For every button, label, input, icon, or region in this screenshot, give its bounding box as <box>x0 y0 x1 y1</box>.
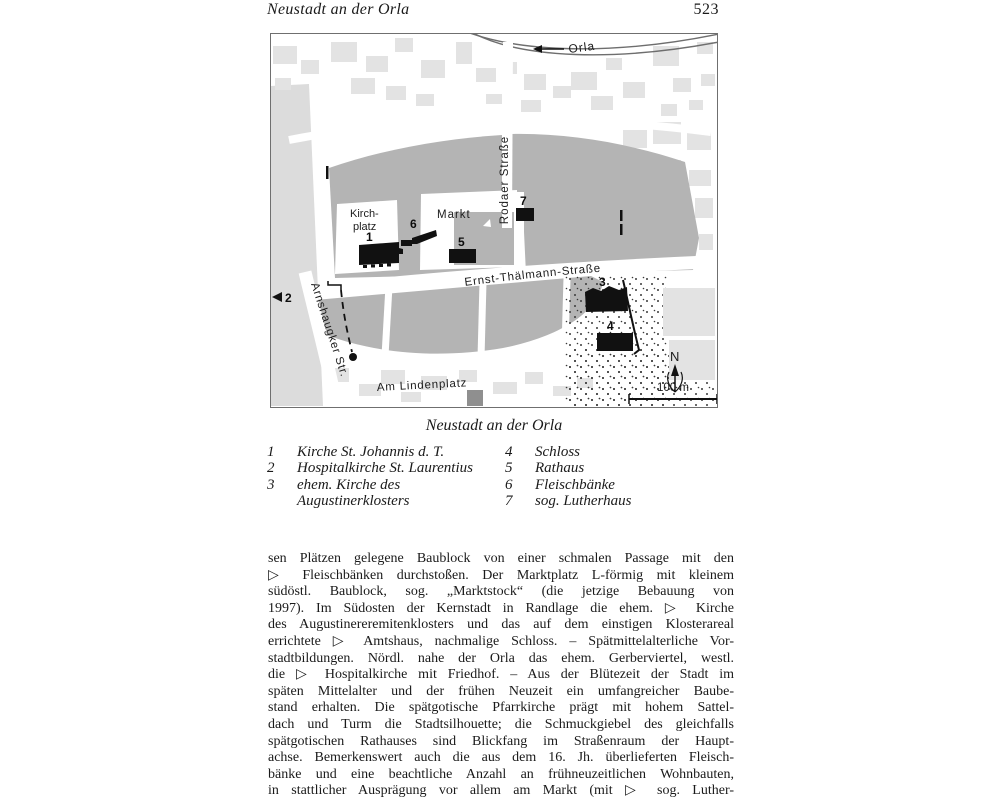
town-plan-map: 1 2 3 4 5 6 7 Orla Rodaer Straße Markt K… <box>270 33 718 408</box>
legend-item: 6 Fleischbänke <box>505 477 725 493</box>
legend-column-left: 1 Kirche St. Johannis d. T. 2 Hospitalki… <box>267 444 502 510</box>
legend-label: Augustinerklosters <box>297 493 502 509</box>
legend-number <box>267 493 297 509</box>
text-line: errichtete ▷ Amtshaus, nachmalige Schlos… <box>268 634 734 651</box>
map-label-rodaer-strasse: Rodaer Straße <box>499 136 511 224</box>
marker-2: 2 <box>285 291 292 305</box>
text-line: bänke und eine beachtliche Anzahl an frü… <box>268 767 734 784</box>
text-line: spätgotischen Rathauses sind Blickfang i… <box>268 734 734 751</box>
legend-number: 2 <box>267 460 297 476</box>
map-outer-buildings-top <box>273 38 715 116</box>
map-dark-building <box>467 390 483 406</box>
legend-number: 7 <box>505 493 535 509</box>
map-outer-buildings-southeast <box>663 288 715 380</box>
map-label-markt: Markt <box>437 209 471 221</box>
building-4-schloss <box>597 333 633 351</box>
marker-7: 7 <box>520 194 527 208</box>
map-label-kirchplatz-1: Kirch- <box>350 208 379 220</box>
marker-6: 6 <box>410 217 417 231</box>
legend-item: 5 Rathaus <box>505 460 725 476</box>
legend-item: 4 Schloss <box>505 444 725 460</box>
legend-number: 4 <box>505 444 535 460</box>
text-line: südöstl. Baublock, sog. „Marktstock“ (di… <box>268 584 734 601</box>
book-page: Neustadt an der Orla 523 <box>0 0 1000 800</box>
building-3-klosterkirche <box>585 286 628 312</box>
legend-label: Schloss <box>535 444 725 460</box>
page-number: 523 <box>694 1 720 19</box>
legend-number: 5 <box>505 460 535 476</box>
marker-5: 5 <box>458 235 465 249</box>
marker-3: 3 <box>599 275 606 289</box>
legend-item: 3 ehem. Kirche des <box>267 477 502 493</box>
legend-number: 6 <box>505 477 535 493</box>
text-line: dach und Turm die Stadtsilhouette; die S… <box>268 717 734 734</box>
legend-label: Rathaus <box>535 460 725 476</box>
text-line: stadtbildungen. Nördl. nahe der Orla das… <box>268 651 734 668</box>
marker-4: 4 <box>607 319 614 333</box>
dot-marker <box>349 353 357 361</box>
legend-item: Augustinerklosters <box>267 493 502 509</box>
text-line: achse. Bemerkenswert auch die aus dem 16… <box>268 750 734 767</box>
legend-number: 3 <box>267 477 297 493</box>
legend-label: sog. Lutherhaus <box>535 493 725 509</box>
legend-item: 2 Hospitalkirche St. Laurentius <box>267 460 502 476</box>
scale-label: 100 m <box>657 382 689 394</box>
legend-number: 1 <box>267 444 297 460</box>
text-line: späten Mittelalter und der frühen Neuzei… <box>268 684 734 701</box>
legend-label: Hospitalkirche St. Laurentius <box>297 460 502 476</box>
map-label-north: N <box>670 349 679 364</box>
page-header: Neustadt an der Orla 523 <box>267 1 719 19</box>
legend-item: 7 sog. Lutherhaus <box>505 493 725 509</box>
text-line: stand erhalten. Die spätgotische Pfarrki… <box>268 700 734 717</box>
map-caption: Neustadt an der Orla <box>270 417 718 435</box>
legend-item: 1 Kirche St. Johannis d. T. <box>267 444 502 460</box>
map-label-orla: Orla <box>568 39 596 56</box>
building-1-kirche <box>359 242 403 265</box>
text-line: des Augustinereremitenklosters und das a… <box>268 617 734 634</box>
map-label-kirchplatz-2: platz <box>353 221 376 233</box>
text-line: sen Plätzen gelegene Baublock von einer … <box>268 551 734 568</box>
text-line: 1997). Im Südosten der Kernstadt in Rand… <box>268 601 734 618</box>
running-head: Neustadt an der Orla <box>267 1 409 19</box>
building-5-rathaus <box>449 249 476 263</box>
text-line: ▷ Fleischbänken durchstoßen. Der Marktpl… <box>268 568 734 585</box>
legend-label: Kirche St. Johannis d. T. <box>297 444 502 460</box>
map-canvas: 1 2 3 4 5 6 7 Orla Rodaer Straße Markt K… <box>271 34 717 407</box>
building-7-lutherhaus <box>516 208 534 221</box>
legend-column-right: 4 Schloss 5 Rathaus 6 Fleischbänke 7 sog… <box>505 444 725 510</box>
text-line: die ▷ Hospitalkirche mit Friedhof. – Aus… <box>268 667 734 684</box>
legend-label: ehem. Kirche des <box>297 477 502 493</box>
text-line: in stattlicher Ausprägung vor allem am M… <box>268 783 734 800</box>
body-text: sen Plätzen gelegene Baublock von einer … <box>268 551 734 800</box>
legend-label: Fleischbänke <box>535 477 725 493</box>
